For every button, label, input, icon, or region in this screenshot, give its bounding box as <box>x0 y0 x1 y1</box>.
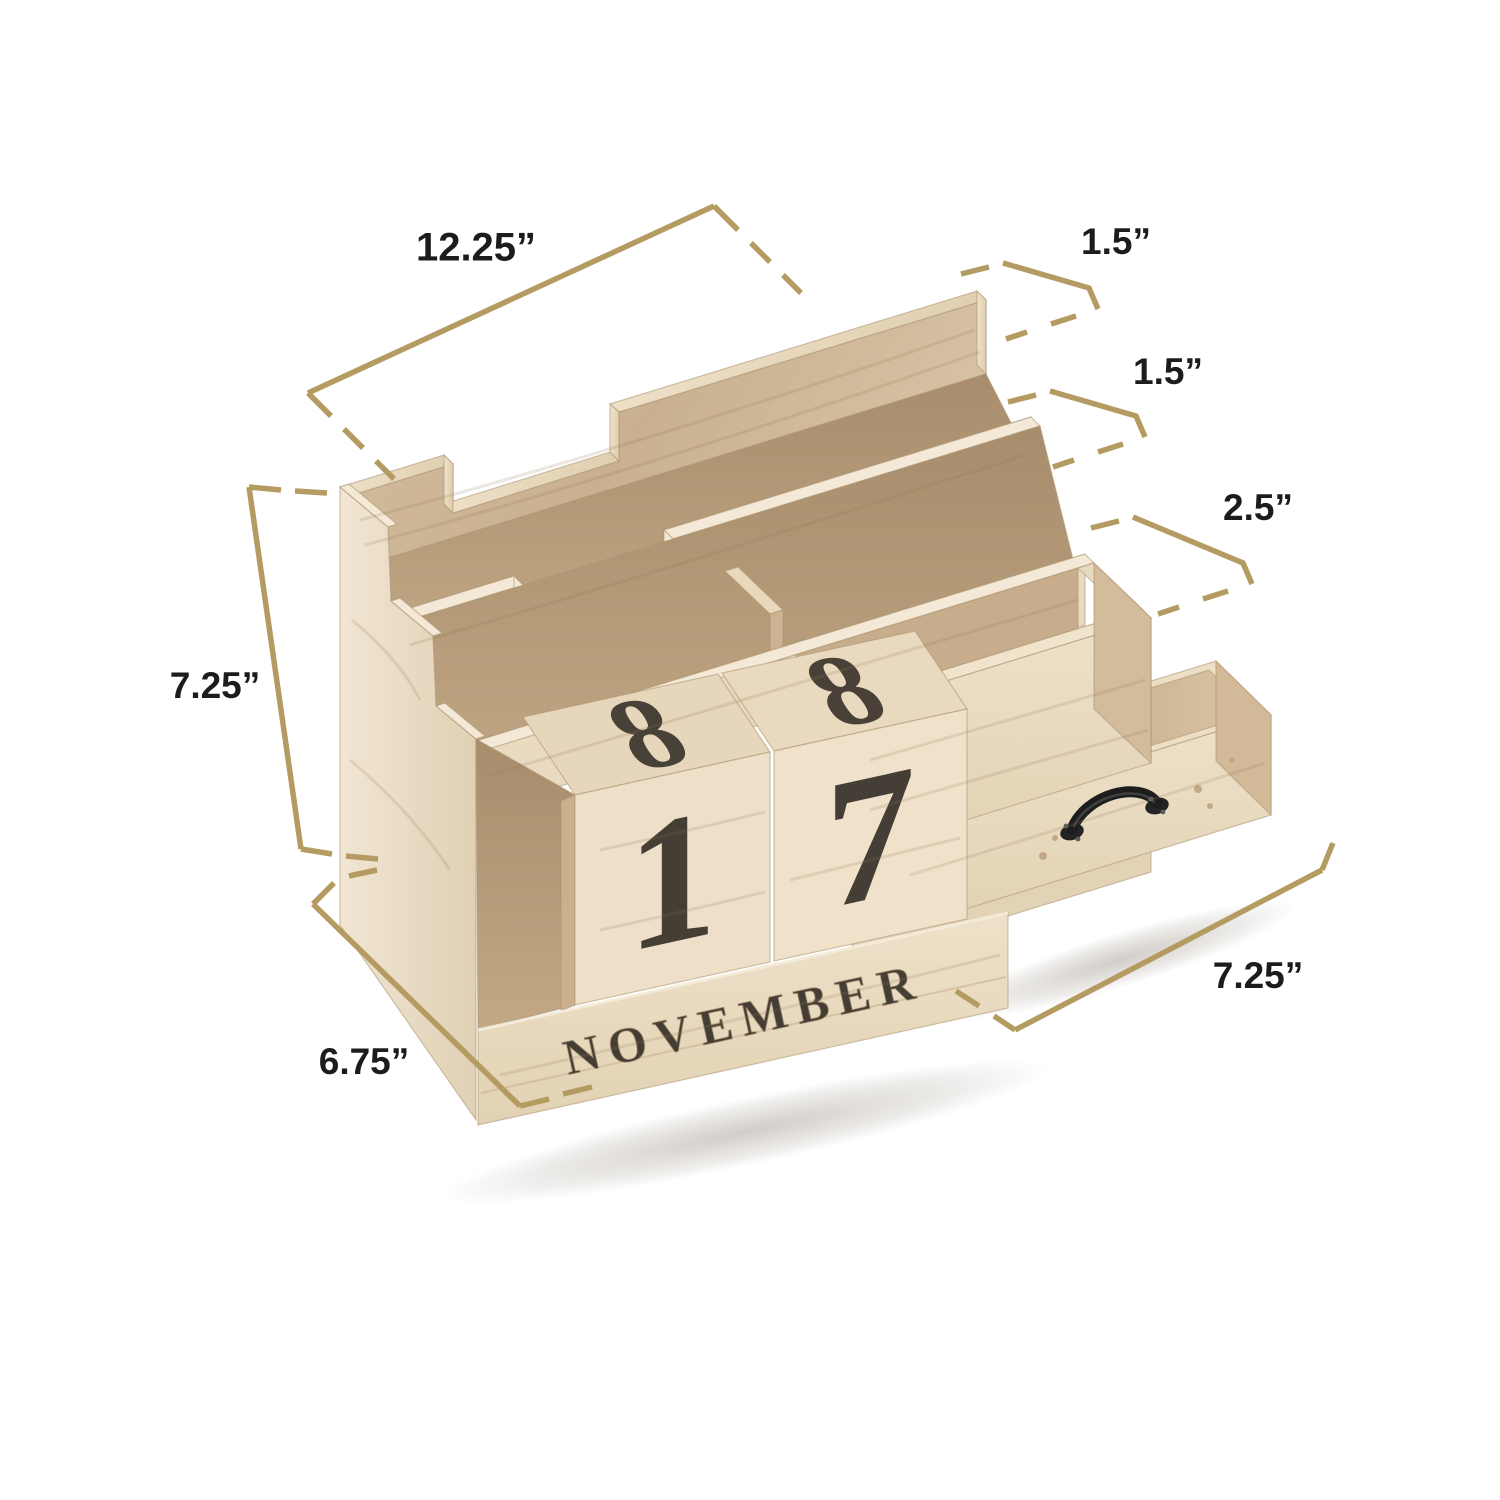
product-dimension-diagram: 8 8 1 7 NOVEMBER <box>0 0 1500 1500</box>
dimension-label-side-depth: 6.75” <box>319 1041 410 1083</box>
organizer-illustration: 8 8 1 7 NOVEMBER <box>0 0 1500 1500</box>
dimension-label-height: 7.25” <box>170 665 261 707</box>
dimension-label-tray: 2.5” <box>1223 487 1293 529</box>
dimension-label-top-width: 12.25” <box>416 226 536 271</box>
calendar-cube-left-side <box>561 795 575 1011</box>
calendar-digit-front-left: 1 <box>627 767 717 992</box>
calendar-digit-front-right: 7 <box>825 724 915 949</box>
dimension-label-back-slot: 1.5” <box>1081 221 1151 263</box>
dimension-label-drawer-width: 7.25” <box>1213 955 1304 997</box>
dimension-label-middle-slot: 1.5” <box>1133 351 1203 393</box>
